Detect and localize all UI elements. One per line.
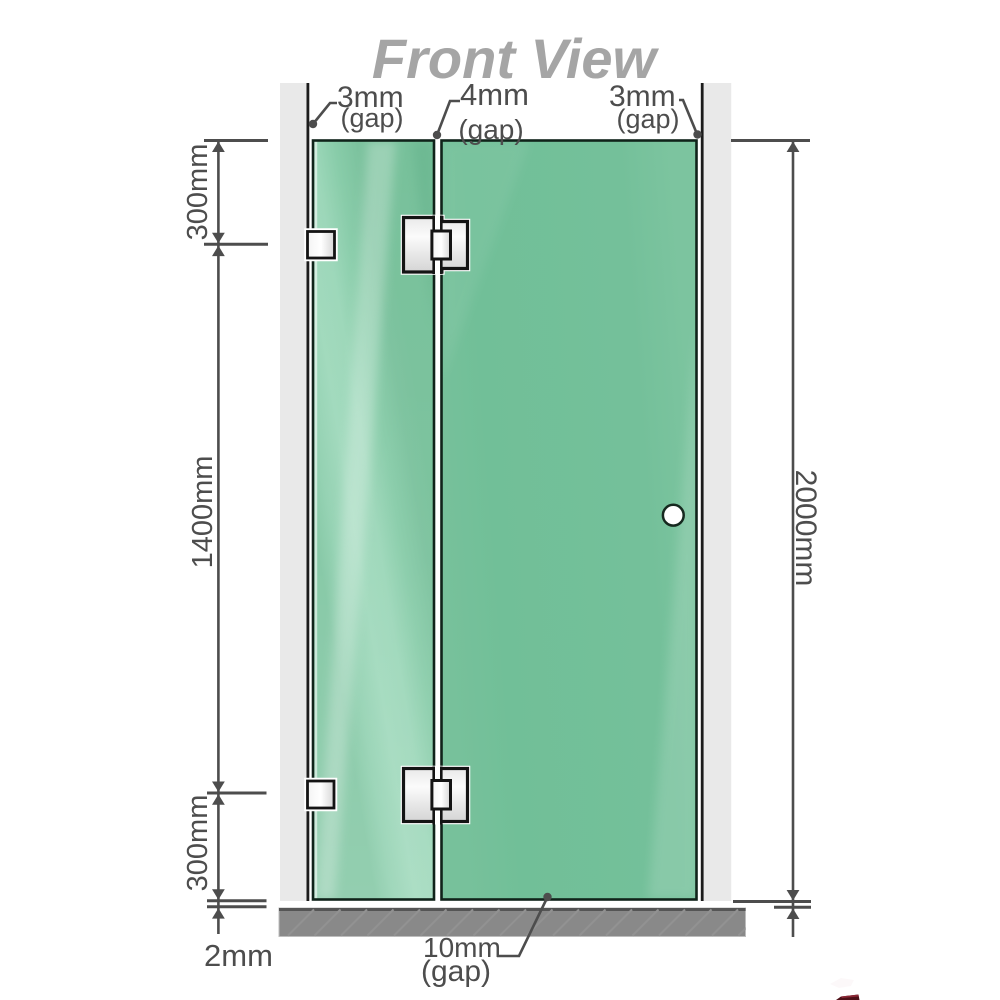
svg-text:300mm: 300mm [182,144,214,241]
svg-text:(gap): (gap) [340,103,403,133]
svg-text:2000mm: 2000mm [789,470,822,587]
svg-text:(gap): (gap) [616,104,679,134]
svg-text:300mm: 300mm [182,795,214,892]
svg-text:2mm: 2mm [204,938,273,973]
svg-text:1400mm: 1400mm [187,456,219,569]
svg-text:(gap): (gap) [421,955,491,988]
svg-text:(gap): (gap) [458,114,523,145]
svg-text:4mm: 4mm [460,77,529,112]
